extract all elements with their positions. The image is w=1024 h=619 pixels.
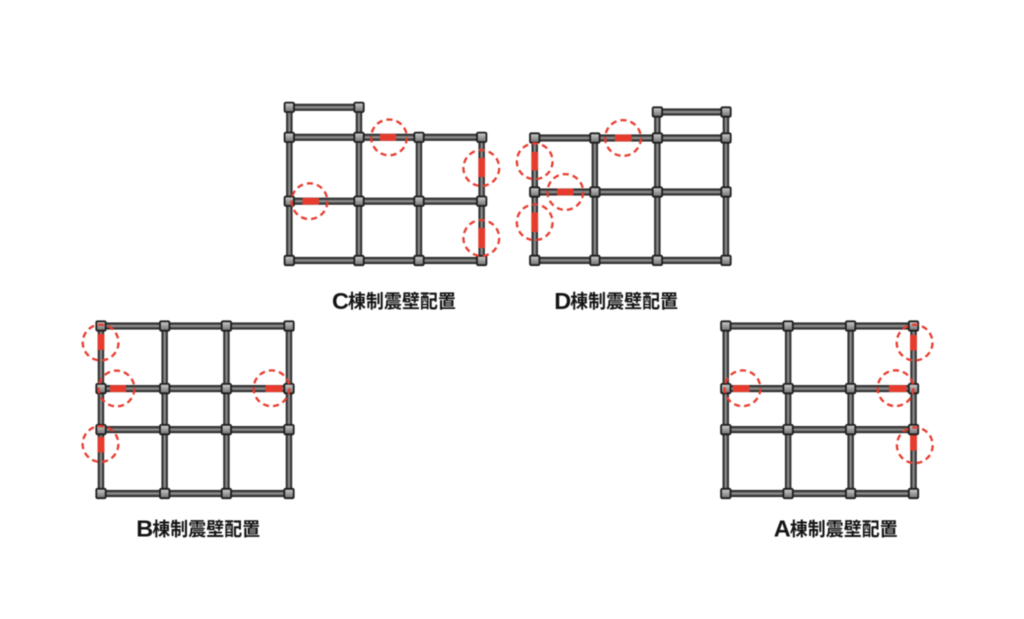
- svg-text:B: B: [136, 516, 153, 542]
- svg-text:C: C: [332, 288, 349, 314]
- svg-text:D: D: [554, 288, 571, 314]
- svg-text:A: A: [774, 516, 791, 542]
